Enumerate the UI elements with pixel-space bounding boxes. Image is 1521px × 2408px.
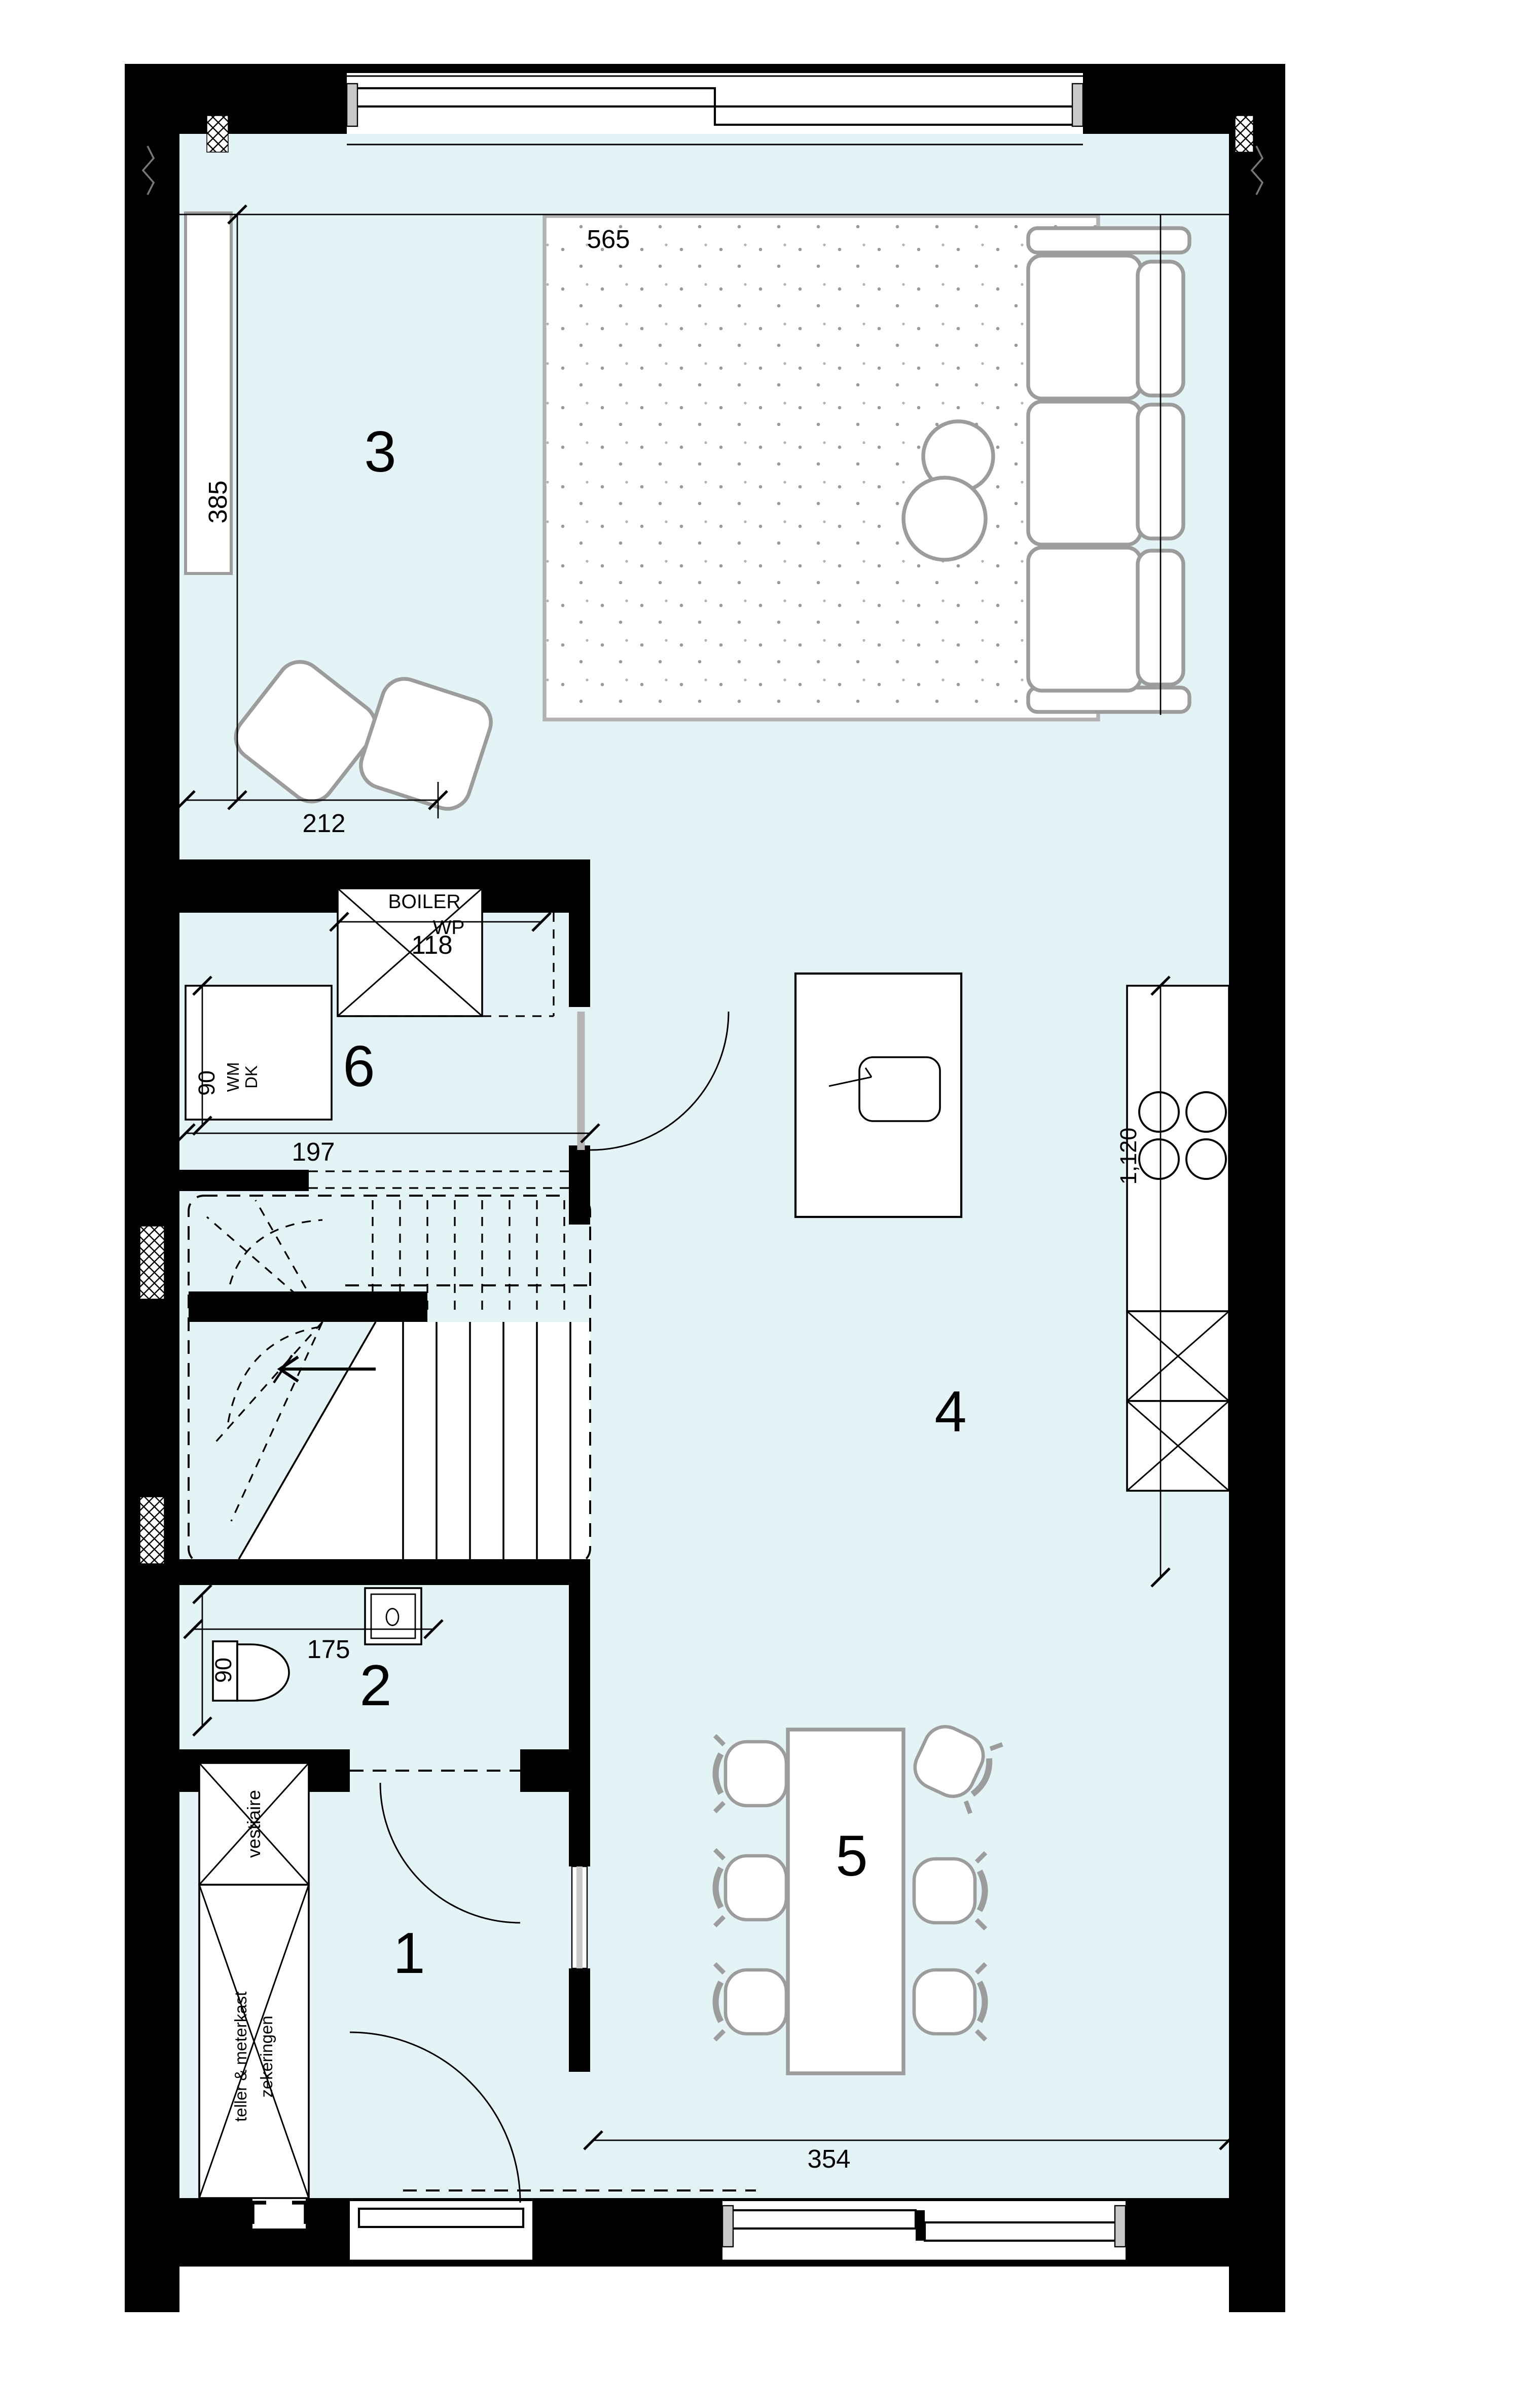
label-vestiaire: vestiaire — [243, 1790, 264, 1858]
window-bottom — [722, 2201, 1126, 2260]
wall-stairs-top — [125, 1170, 309, 1191]
floor-plan: 3 6 4 2 1 5 565 385 212 BOILER WP 118 19… — [0, 0, 1521, 2408]
room-label-5: 5 — [836, 1824, 867, 1888]
washer-dryer-unit — [186, 986, 332, 1120]
room-label-2: 2 — [359, 1654, 391, 1718]
glass-partition — [572, 1866, 587, 1968]
kitchen-island — [795, 974, 961, 1217]
kitchen-counter — [1127, 986, 1229, 1491]
meter-cabinet-closet — [199, 1885, 309, 2198]
dim-212: 212 — [302, 809, 345, 838]
wall-bottom-left-stub — [125, 2198, 179, 2312]
label-boiler: BOILER — [388, 891, 460, 913]
wall-bottom-right-stub — [1229, 2198, 1285, 2312]
dim-175: 175 — [307, 1635, 350, 1664]
room-label-1: 1 — [393, 1921, 425, 1986]
dim-197: 197 — [292, 1137, 335, 1166]
dim-354: 354 — [807, 2144, 850, 2173]
wall-stair-divider — [189, 1291, 427, 1322]
washbasin — [365, 1588, 421, 1644]
dim-90-utility: 90 — [194, 1070, 220, 1096]
wall-toilet-right — [569, 1585, 590, 1866]
label-meterkast-2: zekeringen — [257, 2016, 276, 2097]
wall-right — [1229, 64, 1285, 2267]
sofa — [1028, 228, 1189, 712]
label-dk: DK — [242, 1065, 261, 1089]
dim-90-toilet: 90 — [210, 1658, 236, 1683]
room-label-6: 6 — [343, 1034, 375, 1099]
dim-1120: 1,120 — [1115, 1128, 1141, 1185]
room-label-4: 4 — [934, 1380, 966, 1444]
entrance-door-opening — [350, 2201, 532, 2260]
coffee-table — [903, 478, 986, 560]
room-label-3: 3 — [364, 420, 396, 484]
dim-565: 565 — [587, 225, 630, 254]
label-meterkast-1: teller & meterkast — [231, 1992, 250, 2122]
wall-utility-door-bottom — [569, 1145, 590, 1225]
dining-table — [788, 1730, 903, 2073]
label-wm: WM — [224, 1062, 242, 1092]
dim-385: 385 — [203, 480, 232, 523]
window-top — [347, 73, 1083, 145]
meter-cabinet-door — [252, 2198, 306, 2229]
wall-utility-door-top — [569, 913, 590, 1007]
dim-118: 118 — [411, 930, 452, 959]
wall-hall-pillar — [569, 1968, 590, 2072]
wall-left — [125, 64, 179, 2267]
rug — [545, 216, 1098, 720]
